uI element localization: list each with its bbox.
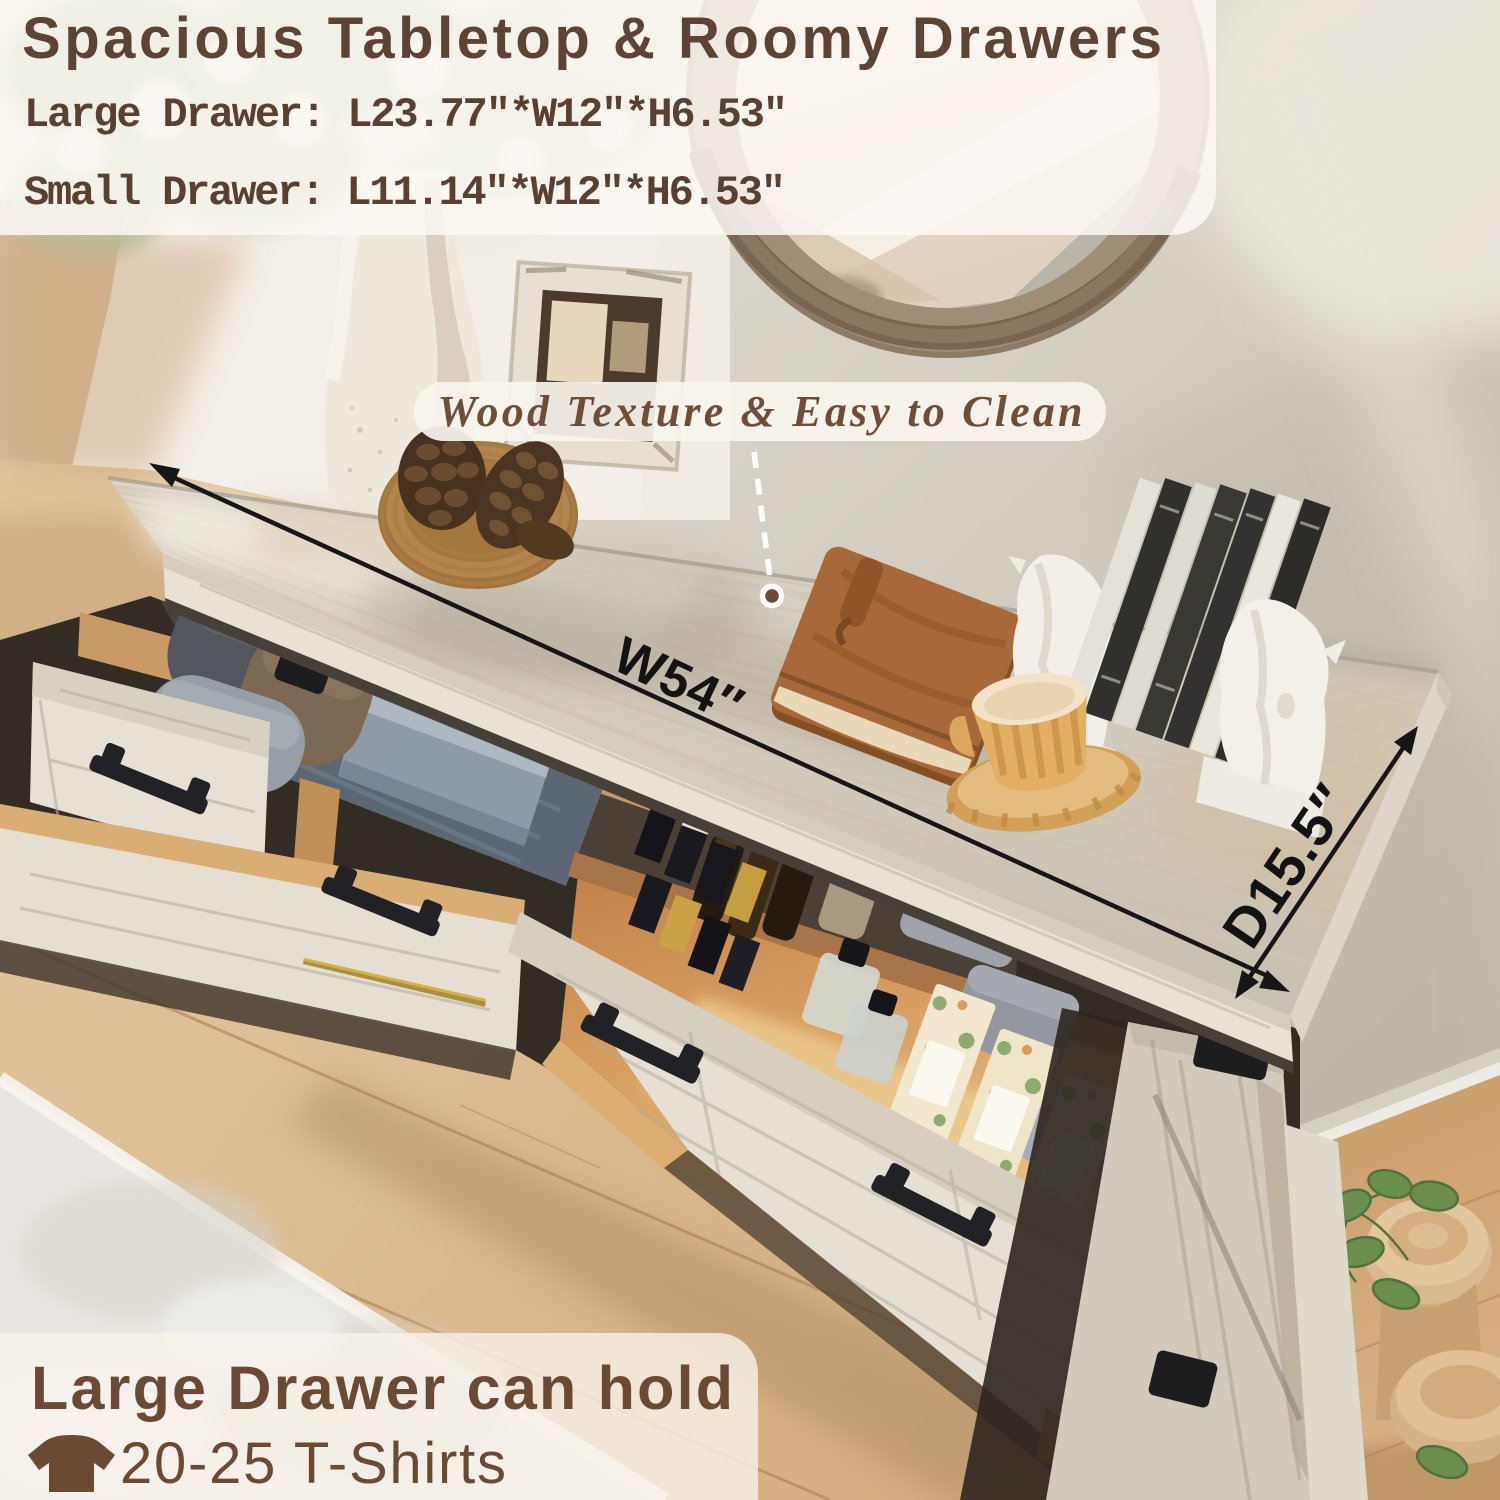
svg-text:20-25 T-Shirts: 20-25 T-Shirts (120, 1431, 506, 1496)
svg-text:Small Drawer: L11.14"*W12"*H6.: Small Drawer: L11.14"*W12"*H6.53" (24, 169, 786, 217)
svg-text:Wood Texture & Easy to Clean: Wood Texture & Easy to Clean (438, 387, 1083, 436)
svg-text:Large Drawer can hold: Large Drawer can hold (31, 1354, 733, 1422)
svg-text:Large Drawer: L23.77"*W12"*H6.: Large Drawer: L23.77"*W12"*H6.53" (24, 91, 788, 139)
